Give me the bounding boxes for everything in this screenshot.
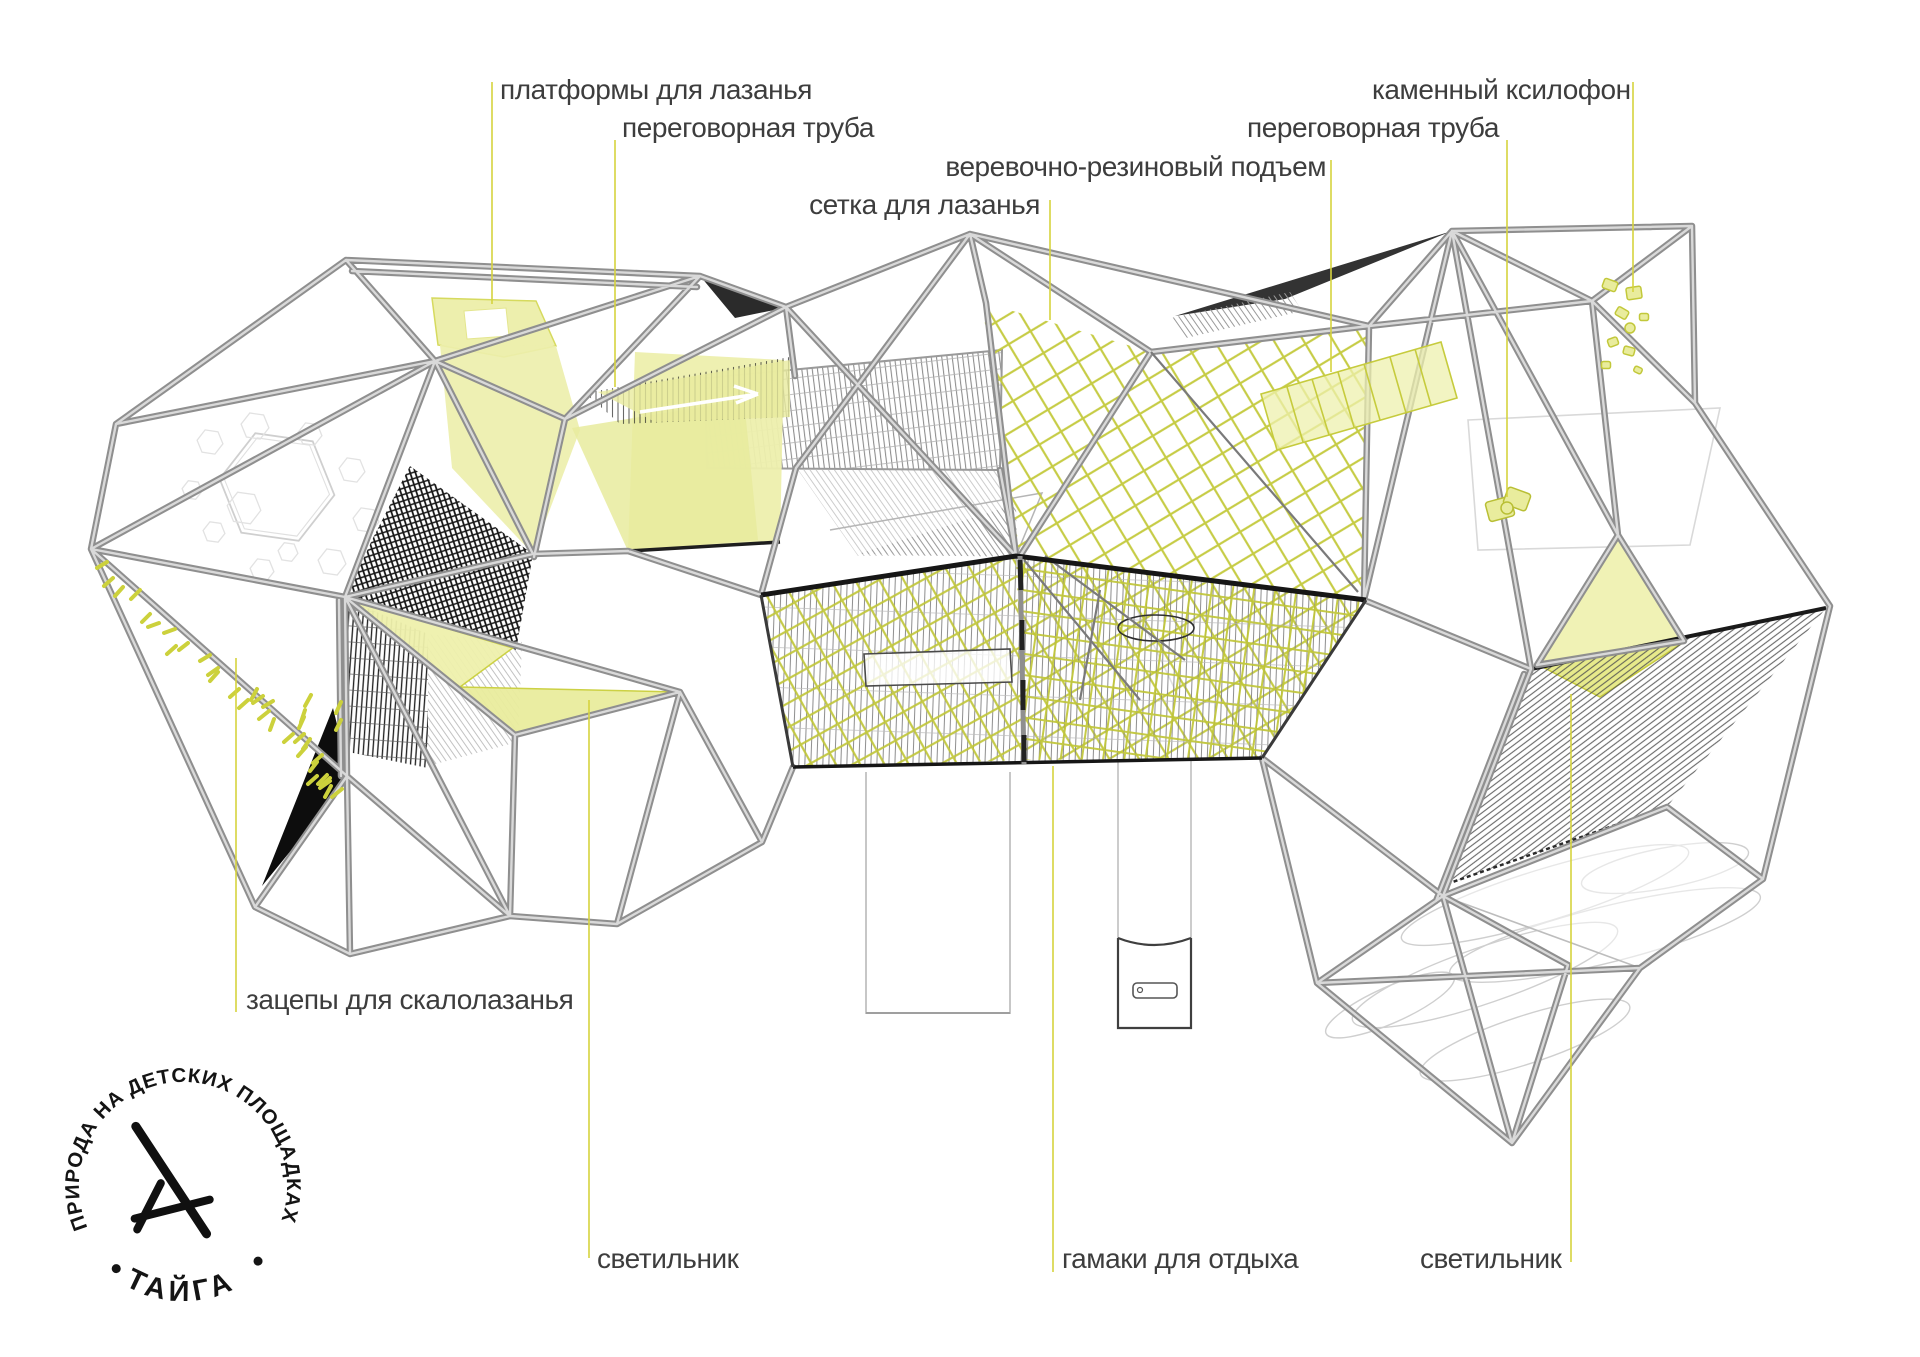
svg-text:переговорная труба: переговорная труба (622, 112, 875, 143)
svg-text:платформы для лазанья: платформы для лазанья (500, 74, 812, 105)
svg-text:гамаки для отдыха: гамаки для отдыха (1062, 1243, 1299, 1274)
svg-text:сетка для лазанья: сетка для лазанья (809, 189, 1040, 220)
svg-text:веревочно-резиновый подъем: веревочно-резиновый подъем (945, 151, 1326, 182)
svg-text:светильник: светильник (1420, 1243, 1563, 1274)
svg-text:переговорная труба: переговорная труба (1247, 112, 1500, 143)
svg-text:зацепы для скалолазанья: зацепы для скалолазанья (246, 984, 573, 1015)
svg-text:светильник: светильник (597, 1243, 740, 1274)
svg-text:каменный ксилофон: каменный ксилофон (1372, 74, 1631, 105)
